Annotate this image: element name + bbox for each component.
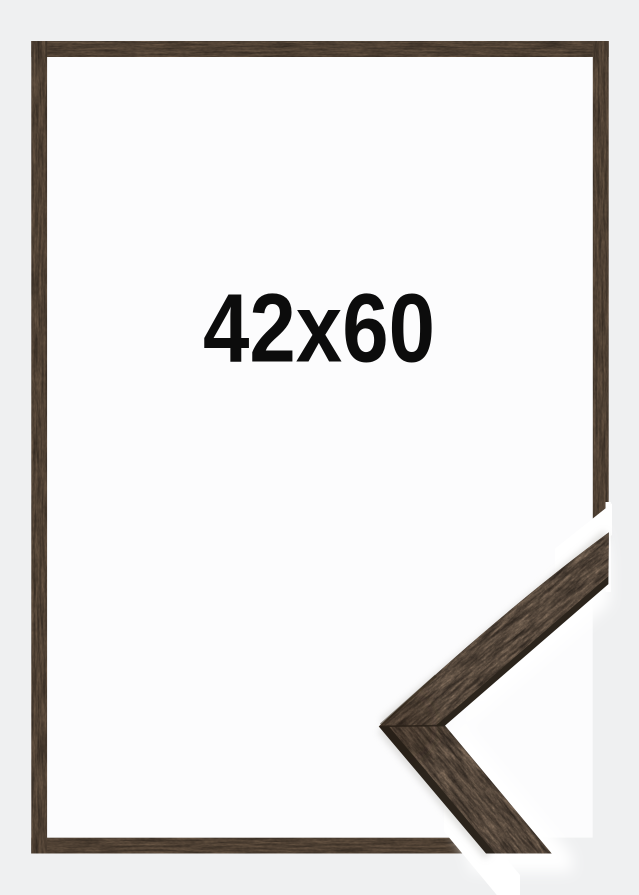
svg-text:42x60: 42x60 [203, 274, 435, 383]
